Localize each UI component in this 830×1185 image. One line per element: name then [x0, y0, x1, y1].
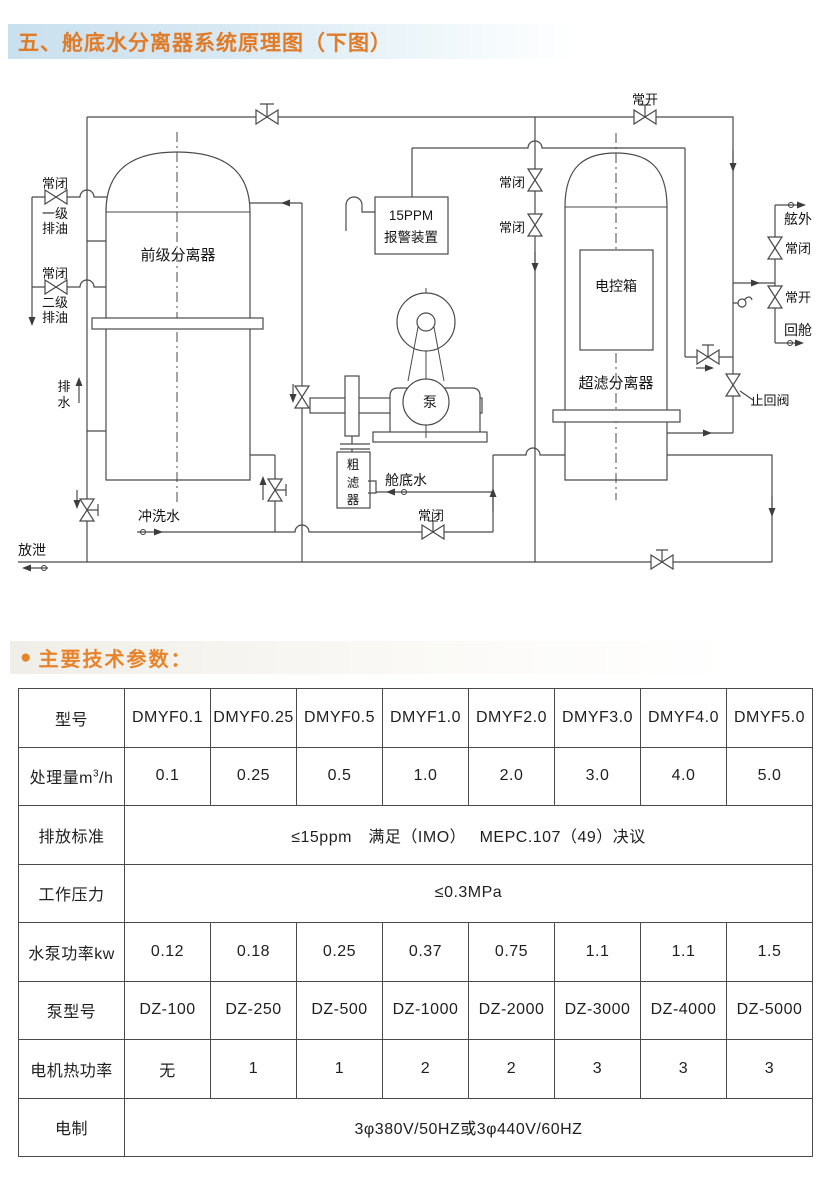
param-cell: 0.37 [383, 923, 469, 982]
params-heading: 主要技术参数： [38, 643, 192, 672]
param-cell: DMYF5.0 [727, 689, 813, 748]
label-nc-2: 常闭 [42, 266, 68, 281]
table-row: 泵型号 DZ-100 DZ-250 DZ-500 DZ-1000 DZ-2000… [19, 981, 813, 1040]
pump-base [373, 432, 487, 442]
label-drain-2: 水 [57, 395, 70, 410]
param-row-label: 水泵功率kw [19, 923, 125, 982]
param-cell: 2 [383, 1040, 469, 1099]
table-row: 排放标准 ≤15ppm 满足（IMO） MEPC.107（49）决议 [19, 806, 813, 865]
label-oil-drain-2: 排油 [42, 310, 68, 325]
label-pump: 泵 [423, 394, 437, 410]
label-filter-1: 粗 [347, 458, 360, 472]
pre-separator-tank: 前级分离器 [92, 132, 263, 505]
label-pre-separator: 前级分离器 [140, 247, 215, 264]
param-cell: 0.5 [297, 747, 383, 806]
param-cell: 2 [469, 1040, 555, 1099]
param-cell: 无 [125, 1040, 211, 1099]
label-nc-3: 常闭 [499, 175, 525, 190]
param-span-cell: ≤15ppm 满足（IMO） MEPC.107（49）决议 [125, 806, 813, 865]
label-uf-separator: 超滤分离器 [578, 375, 653, 392]
check-valve-icon [726, 374, 740, 396]
valve-return [768, 286, 782, 308]
label-overboard: 舷外 [784, 211, 812, 227]
valve-stage2-oil [45, 280, 67, 294]
param-cell: DMYF4.0 [641, 689, 727, 748]
param-row-label: 处理量m3/h [19, 747, 125, 806]
catalog-page: 五、舱底水分离器系统原理图（下图） [0, 0, 830, 1185]
table-row: 电机热功率 无 1 1 2 2 3 3 3 [19, 1040, 813, 1099]
label-drain-1: 排 [57, 379, 70, 394]
param-cell: 0.18 [211, 923, 297, 982]
label-discharge: 放泄 [18, 542, 46, 558]
param-cell: 0.1 [125, 747, 211, 806]
param-cell: 3 [641, 1040, 727, 1099]
param-cell: 0.12 [125, 923, 211, 982]
param-cell: DZ-1000 [383, 981, 469, 1040]
param-cell: DZ-500 [297, 981, 383, 1040]
table-row: 型号 DMYF0.1 DMYF0.25 DMYF0.5 DMYF1.0 DMYF… [19, 689, 813, 748]
valve-stage1-oil [45, 190, 67, 204]
label-stage1: 一级 [42, 206, 68, 221]
params-heading-bar: ● 主要技术参数： [10, 641, 730, 674]
param-cell: DMYF0.5 [297, 689, 383, 748]
param-cell: 0.25 [297, 923, 383, 982]
table-row: 水泵功率kw 0.12 0.18 0.25 0.37 0.75 1.1 1.1 … [19, 923, 813, 982]
label-flushing-water: 冲洗水 [138, 508, 180, 524]
param-cell: 2.0 [469, 747, 555, 806]
param-span-cell: ≤0.3MPa [125, 864, 813, 923]
param-cell: 3.0 [555, 747, 641, 806]
label-alarm-2: 报警装置 [384, 230, 438, 245]
param-cell: 1.0 [383, 747, 469, 806]
param-cell: DZ-5000 [727, 981, 813, 1040]
label-filter-2: 滤 [347, 476, 360, 490]
param-cell: DMYF0.25 [211, 689, 297, 748]
flange [92, 318, 263, 329]
label-part: /h [99, 770, 113, 787]
param-cell: 4.0 [641, 747, 727, 806]
sensor-probe-icon [346, 197, 375, 231]
param-cell: DMYF3.0 [555, 689, 641, 748]
label-part: 处理量m [30, 770, 93, 787]
valve-riser [295, 386, 309, 408]
uf-separator-tank: 电控箱 超滤分离器 [553, 133, 680, 500]
parameters-table: 型号 DMYF0.1 DMYF0.25 DMYF0.5 DMYF1.0 DMYF… [18, 688, 813, 1157]
param-cell: DZ-250 [211, 981, 297, 1040]
label-nc-6: 常闭 [785, 241, 811, 256]
label-nc-4: 常闭 [499, 220, 525, 235]
param-row-label: 电制 [19, 1098, 125, 1157]
param-cell: DMYF1.0 [383, 689, 469, 748]
table-row: 处理量m3/h 0.1 0.25 0.5 1.0 2.0 3.0 4.0 5.0 [19, 747, 813, 806]
param-cell: DMYF0.1 [125, 689, 211, 748]
param-cell: 0.75 [469, 923, 555, 982]
param-cell: DZ-2000 [469, 981, 555, 1040]
param-cell: 1.5 [727, 923, 813, 982]
valve-nc-upper [528, 169, 542, 191]
alarm-device: 15PPM 报警装置 [346, 197, 448, 254]
label-filter-3: 器 [347, 493, 360, 507]
param-cell: 1 [211, 1040, 297, 1099]
param-cell: DMYF2.0 [469, 689, 555, 748]
param-cell: DZ-3000 [555, 981, 641, 1040]
param-cell: 1.1 [641, 923, 727, 982]
label-oil-drain-1: 排油 [42, 221, 68, 236]
param-span-cell: 3φ380V/50HZ或3φ440V/60HZ [125, 1098, 813, 1157]
label-no-2: 常开 [785, 290, 811, 305]
label-alarm-1: 15PPM [389, 208, 433, 223]
coarse-filter: 粗 滤 器 [337, 436, 376, 508]
param-cell: DZ-4000 [641, 981, 727, 1040]
param-row-label: 泵型号 [19, 981, 125, 1040]
param-cell: DZ-100 [125, 981, 211, 1040]
label-stage2: 二级 [42, 295, 68, 310]
label-check-valve: 止回阀 [750, 393, 789, 408]
label-bilge-water: 舱底水 [385, 472, 427, 488]
label-return-cabin: 回舱 [784, 322, 812, 338]
system-diagram: 前级分离器 电控箱 超滤分离器 15PPM 报警装置 [0, 0, 830, 640]
param-cell: 1.1 [555, 923, 641, 982]
valve-nc-lower [528, 214, 542, 236]
param-row-label: 排放标准 [19, 806, 125, 865]
param-row-label: 工作压力 [19, 864, 125, 923]
bullet-icon: ● [20, 648, 31, 667]
param-cell: 0.25 [211, 747, 297, 806]
param-cell: 3 [727, 1040, 813, 1099]
control-box [580, 250, 653, 350]
label-normally-open-top: 常开 [632, 92, 658, 107]
label-nc-1: 常闭 [42, 176, 68, 191]
param-cell: 5.0 [727, 747, 813, 806]
param-row-label: 型号 [19, 689, 125, 748]
valve-overboard [768, 237, 782, 259]
label-nc-5: 常闭 [418, 508, 444, 523]
flange [553, 410, 680, 422]
label-control-box: 电控箱 [595, 278, 637, 294]
table-row: 电制 3φ380V/50HZ或3φ440V/60HZ [19, 1098, 813, 1157]
param-row-label: 电机热功率 [19, 1040, 125, 1099]
param-cell: 3 [555, 1040, 641, 1099]
pump-assembly: 泵 [310, 288, 487, 442]
table-row: 工作压力 ≤0.3MPa [19, 864, 813, 923]
param-cell: 1 [297, 1040, 383, 1099]
